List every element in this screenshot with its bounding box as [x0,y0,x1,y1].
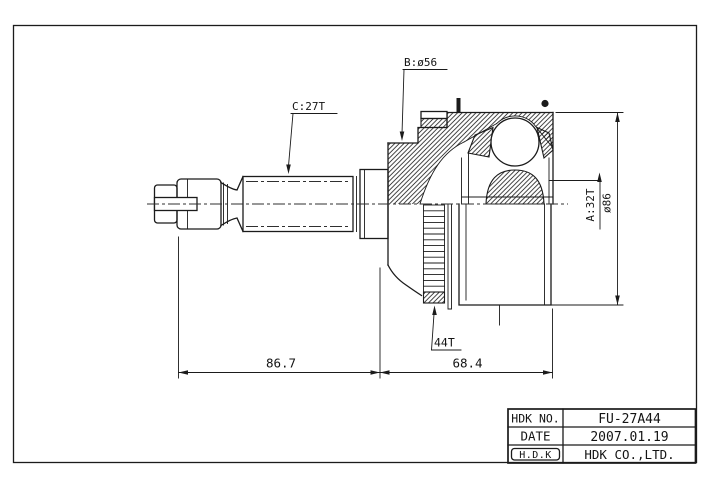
label-a-spline-count: A:32T [584,188,597,221]
arrow-44t [432,306,437,316]
hdk-no-value: FU-27A44 [598,412,661,427]
page-border [14,26,697,463]
bearing-ball [491,118,539,166]
label-a-diameter: ø86 [601,193,614,213]
title-block: HDK NO. FU-27A44 DATE 2007.01.19 H.D.K H… [508,409,696,463]
annotations: B:ø56 C:27T A:32T ø86 44T [179,56,624,378]
outer-race [459,204,551,325]
label-b-diameter: B:ø56 [404,56,437,69]
abs-tone-ring-teeth [424,205,445,303]
company-name: HDK CO.,LTD. [584,447,674,462]
dim-joint-length: 68.4 [452,356,482,371]
arrow-c [286,165,291,175]
arrow-b [400,132,405,142]
chamfer-dot [541,100,548,107]
drawing-sheet: B:ø56 C:27T A:32T ø86 44T [0,0,720,479]
hdk-no-label: HDK NO. [511,412,559,426]
hdk-logo-text: H.D.K [519,450,552,461]
label-c-spline-count: C:27T [292,100,325,113]
arrow-a [597,173,602,183]
dim-shaft-length: 86.7 [266,356,296,371]
ring-flange [457,98,461,113]
dim-lengths: 86.7 68.4 [179,237,553,378]
label-abs-teeth-count: 44T [434,336,455,350]
date-label: DATE [520,429,550,444]
dim-outer-diameter: A:32T ø86 [549,113,623,306]
cv-joint-technical-drawing: B:ø56 C:27T A:32T ø86 44T [0,0,720,479]
date-value: 2007.01.19 [590,430,668,445]
